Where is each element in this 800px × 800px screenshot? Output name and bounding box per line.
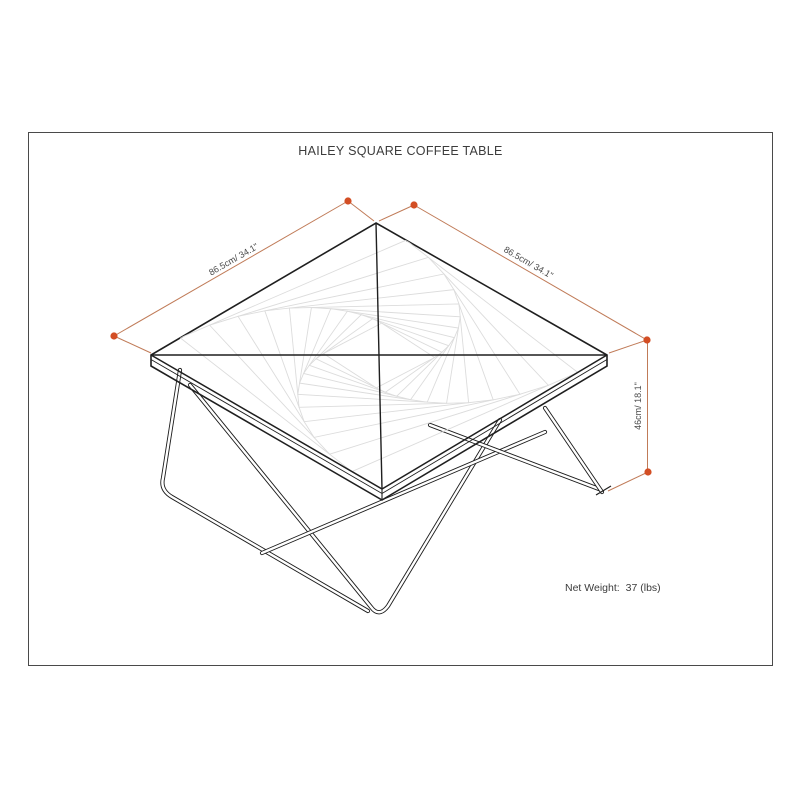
depth-dimension-line (414, 205, 647, 340)
net-weight-value: 37 (lbs) (626, 582, 661, 594)
net-weight: Net Weight:37 (lbs) (565, 582, 661, 594)
dimension-endpoint-dot (110, 332, 117, 339)
dimension-endpoint-dot (344, 197, 351, 204)
depth-dimension-label: 86.5cm/ 34.1" (502, 244, 555, 280)
dimension-endpoint-dot (410, 201, 417, 208)
dimension-endpoint-dot (643, 336, 650, 343)
width-dimension-label: 86.5cm/ 34.1" (207, 241, 260, 277)
net-weight-label: Net Weight: (565, 582, 620, 594)
dimension-endpoint-dot (644, 468, 651, 475)
height-dimension-label: 46cm/ 18.1" (633, 382, 643, 430)
dimension-diagram: 86.5cm/ 34.1" 86.5cm/ 34.1" 46cm/ 18.1" (0, 0, 800, 800)
product-dimension-page: HAILEY SQUARE COFFEE TABLE (0, 0, 800, 800)
